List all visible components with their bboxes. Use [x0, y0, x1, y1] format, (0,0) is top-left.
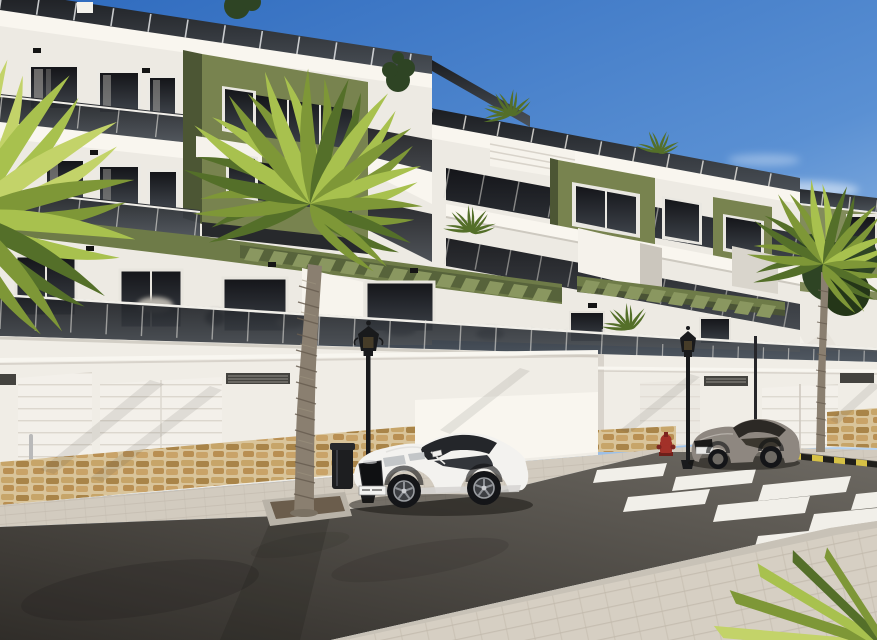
wall-light — [410, 268, 418, 273]
wall-light — [268, 262, 276, 267]
car-grille — [359, 461, 383, 489]
roof-chimney — [77, 2, 93, 13]
stone-base-right — [827, 408, 877, 448]
car-shadow — [349, 494, 533, 516]
lantern-glass — [684, 341, 692, 350]
door-handle — [29, 434, 33, 462]
wall-light — [86, 246, 94, 251]
car-wheel — [387, 474, 421, 508]
right-mid-windows — [662, 196, 702, 245]
architectural-render — [0, 0, 877, 640]
car-wheel — [467, 471, 501, 505]
litter-bin — [330, 443, 355, 489]
lantern-glass — [363, 337, 374, 348]
wall-light — [142, 68, 150, 73]
wall-light — [90, 150, 98, 155]
wall-light — [33, 48, 41, 53]
